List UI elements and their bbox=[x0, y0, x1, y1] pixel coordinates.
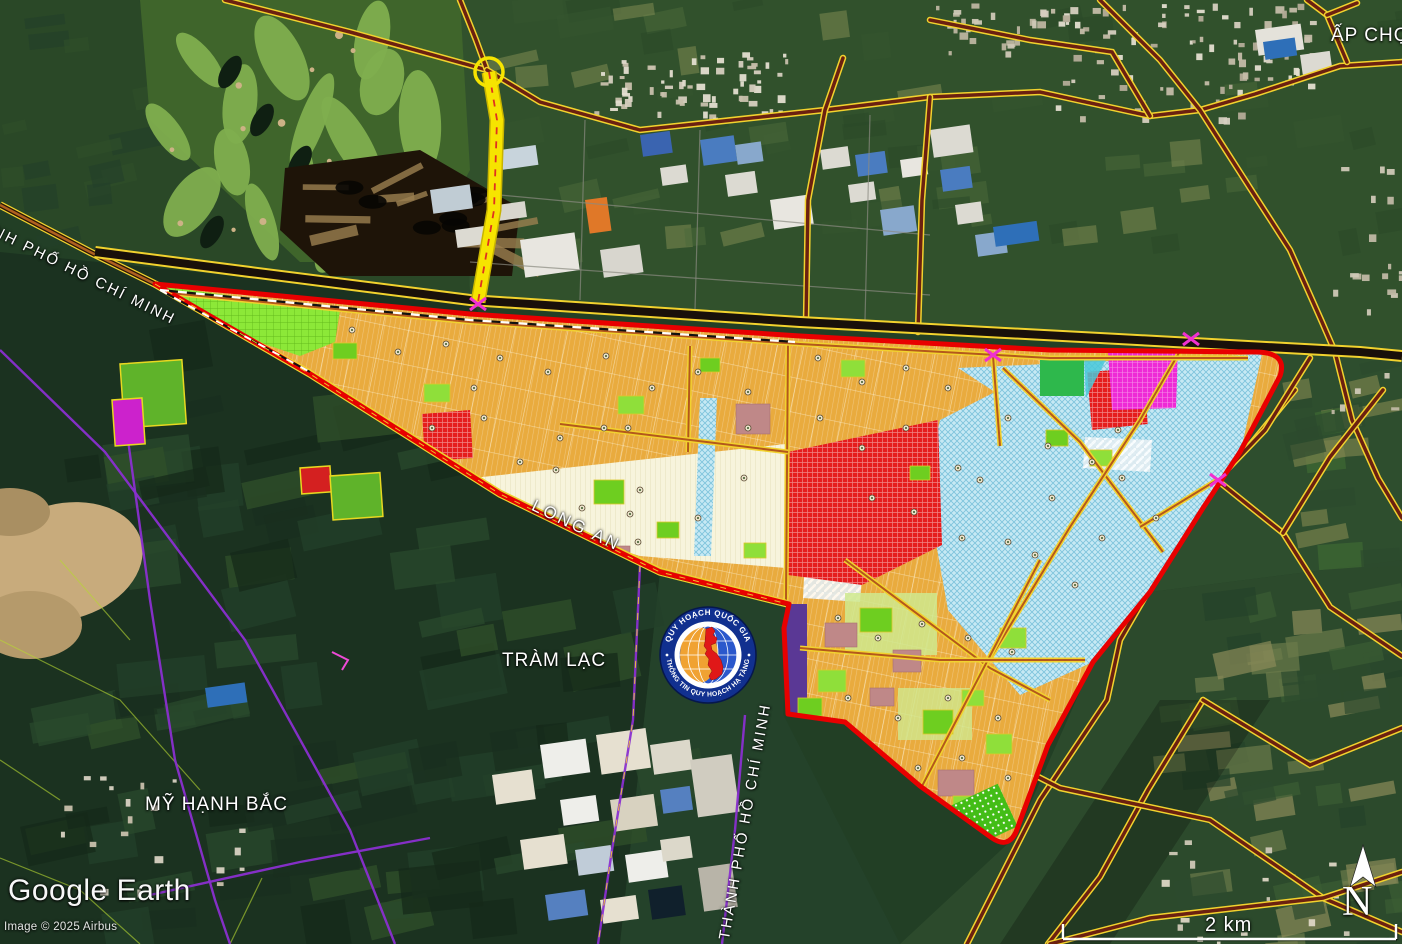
map-drawing[interactable]: QUY HOẠCH QUỐC GIA THÔNG TIN QUY HOẠCH H… bbox=[0, 0, 1402, 944]
satellite-map-canvas[interactable]: QUY HOẠCH QUỐC GIA THÔNG TIN QUY HOẠCH H… bbox=[0, 0, 1402, 944]
planning-portal-emblem: QUY HOẠCH QUỐC GIA THÔNG TIN QUY HOẠCH H… bbox=[660, 607, 756, 703]
